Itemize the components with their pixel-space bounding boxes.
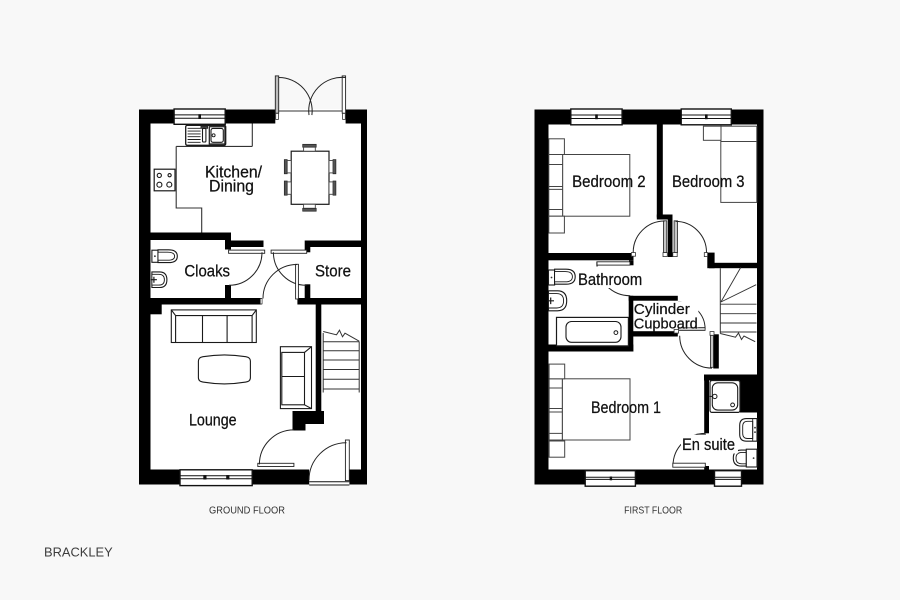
- svg-text:Bedroom 1: Bedroom 1: [591, 399, 661, 417]
- svg-text:Cylinder: Cylinder: [634, 302, 690, 318]
- svg-text:Store: Store: [315, 262, 351, 280]
- svg-text:FIRST FLOOR: FIRST FLOOR: [624, 505, 682, 516]
- svg-text:Lounge: Lounge: [189, 412, 237, 430]
- svg-text:BRACKLEY: BRACKLEY: [44, 544, 113, 559]
- svg-text:Bedroom 3: Bedroom 3: [672, 173, 745, 191]
- svg-text:GROUND FLOOR: GROUND FLOOR: [209, 505, 285, 516]
- svg-text:Bedroom 2: Bedroom 2: [572, 173, 646, 191]
- svg-text:Dining: Dining: [209, 178, 254, 196]
- svg-text:Cloaks: Cloaks: [184, 262, 230, 280]
- svg-text:Bathroom: Bathroom: [578, 271, 642, 289]
- svg-text:Cupboard: Cupboard: [634, 317, 698, 333]
- svg-text:En suite: En suite: [682, 436, 735, 454]
